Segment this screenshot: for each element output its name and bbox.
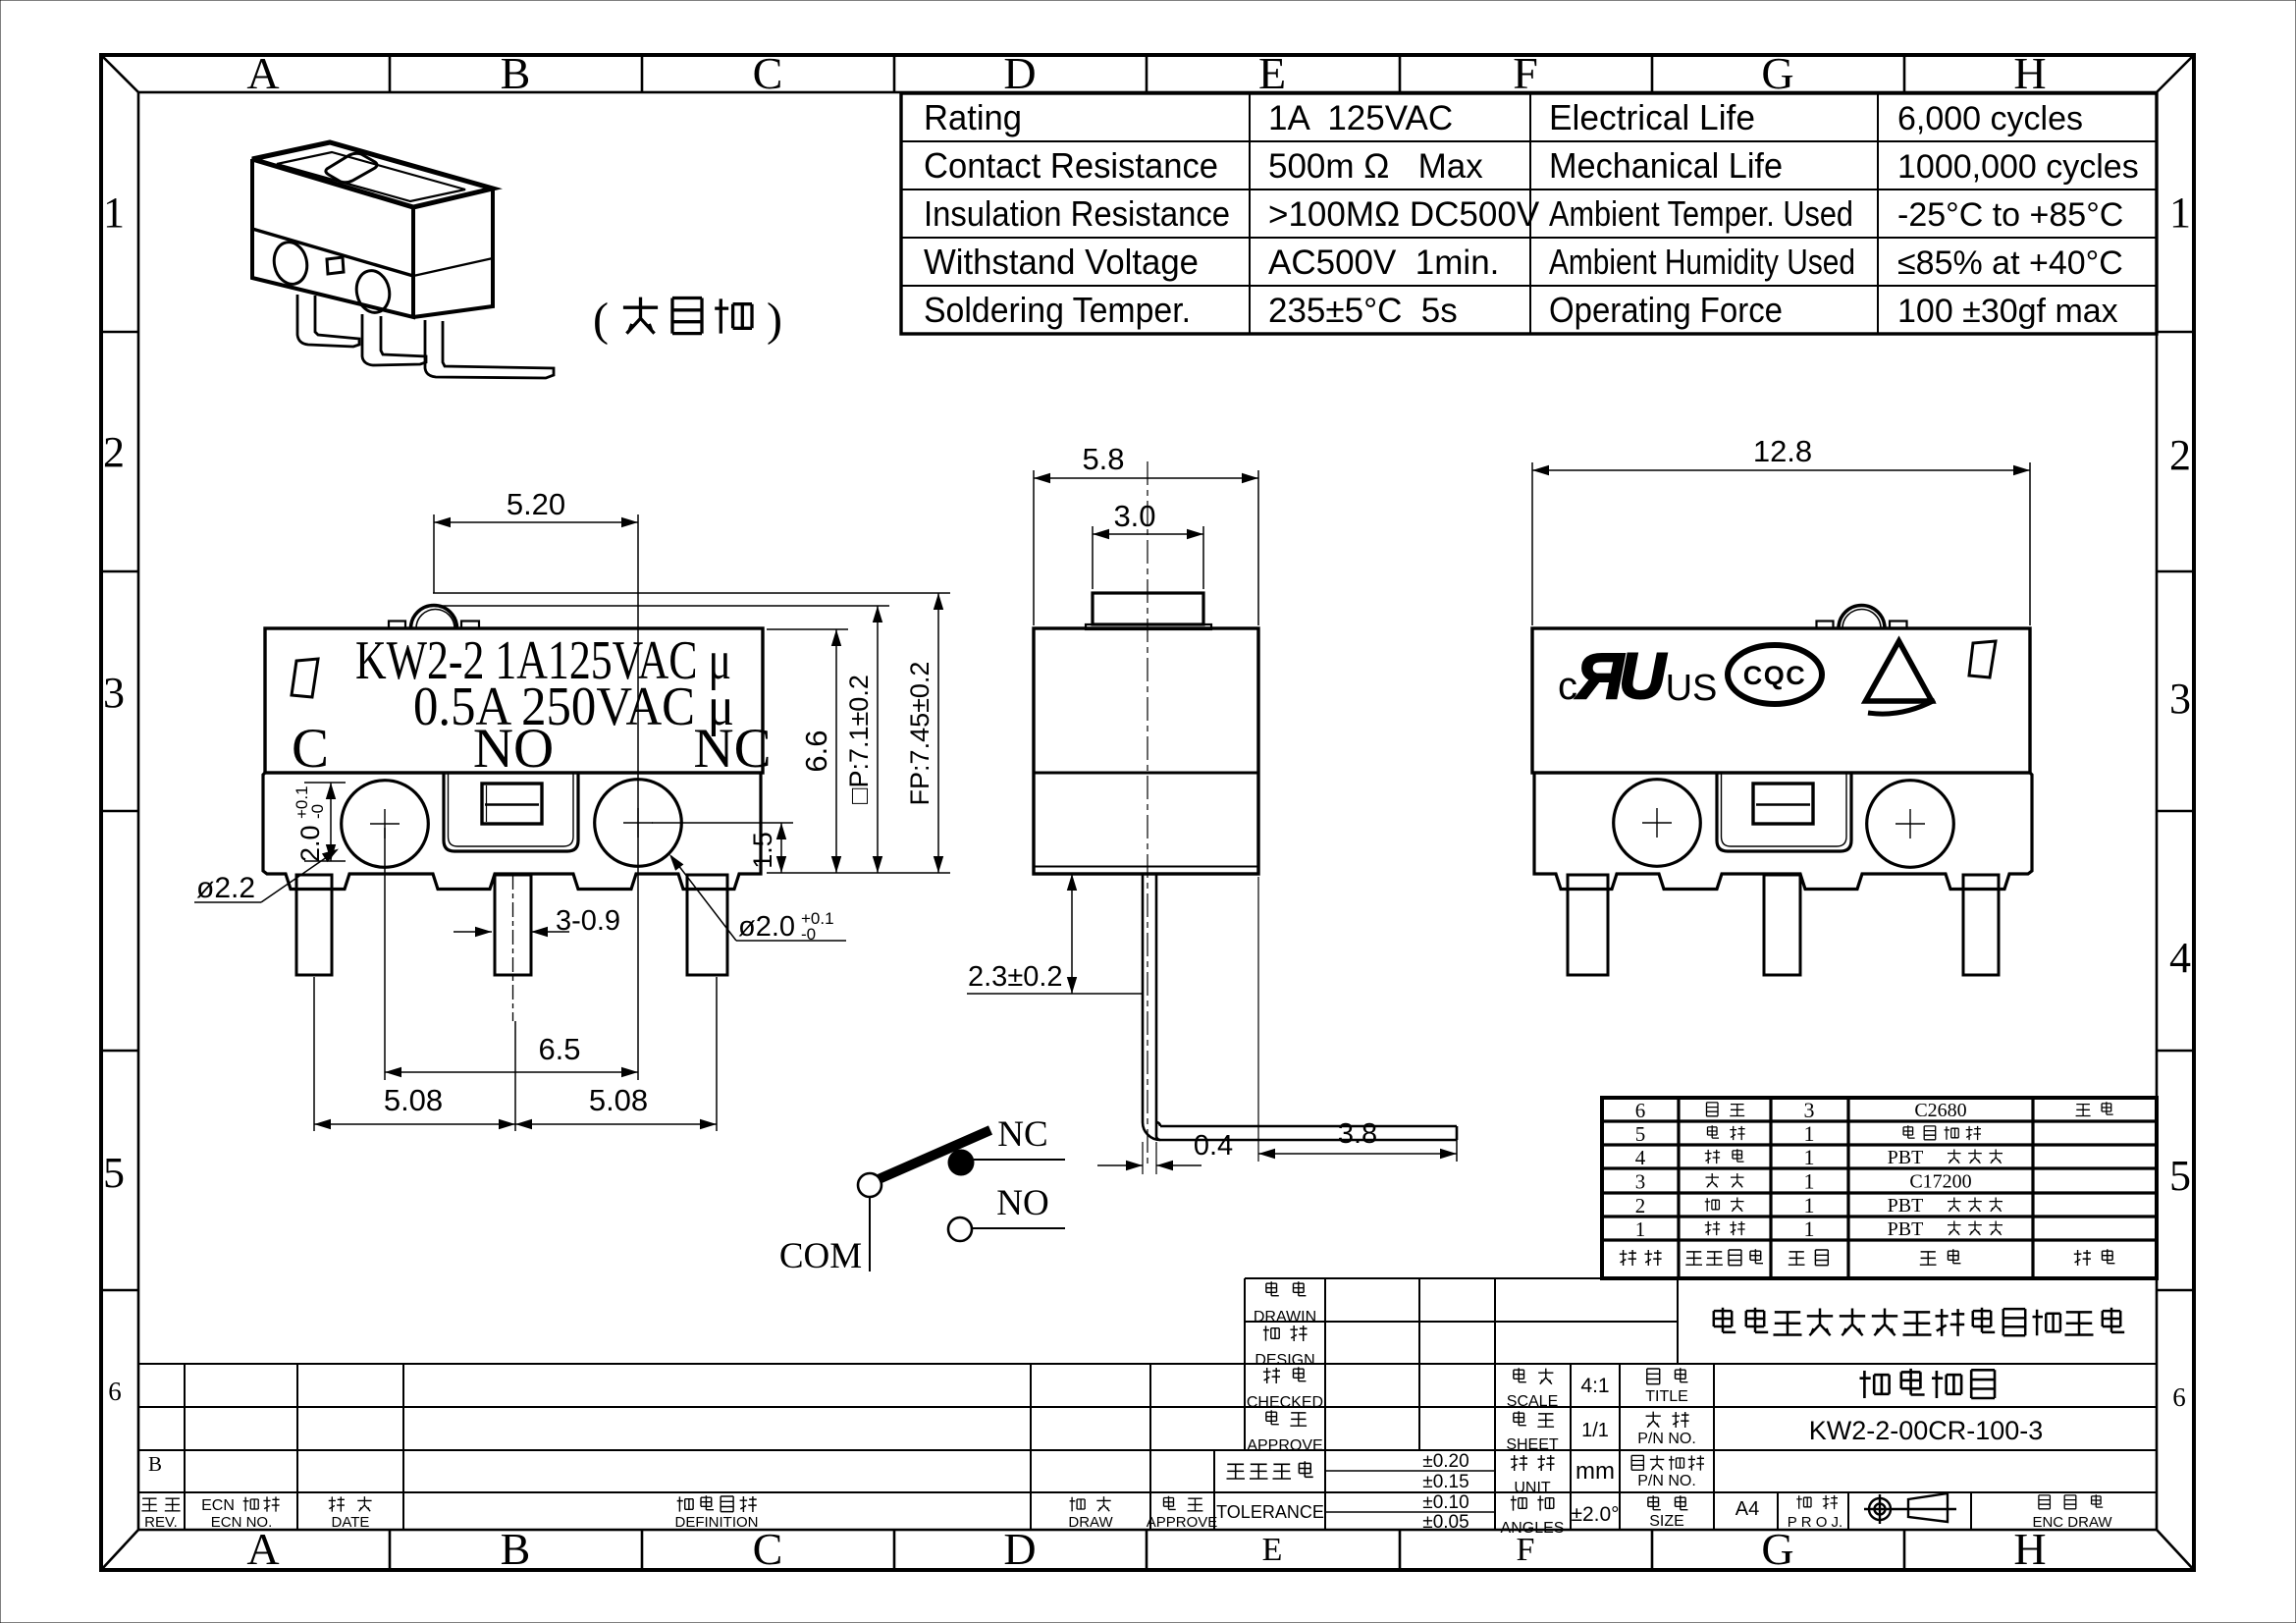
svg-text:D: D — [1003, 48, 1036, 98]
svg-text:Ambient Humidity Used: Ambient Humidity Used — [1549, 242, 1855, 282]
svg-text:C: C — [753, 48, 783, 98]
svg-text:3-0.9: 3-0.9 — [556, 905, 620, 937]
svg-text:1A 125VAC: 1A 125VAC — [1268, 99, 1453, 137]
svg-text:1: 1 — [1804, 1193, 1815, 1217]
svg-text:UNIT: UNIT — [1514, 1480, 1551, 1496]
svg-text:Insulation Resistance: Insulation Resistance — [924, 193, 1230, 234]
svg-text:A4: A4 — [1735, 1498, 1759, 1520]
svg-text:FP:7.45±0.2: FP:7.45±0.2 — [905, 662, 934, 806]
svg-text:5.8: 5.8 — [1082, 442, 1124, 476]
svg-text:KW2-2-00CR-100-3: KW2-2-00CR-100-3 — [1809, 1416, 2044, 1445]
svg-text:B: B — [148, 1452, 162, 1476]
svg-text:6.6: 6.6 — [799, 730, 833, 772]
svg-text:A: A — [246, 48, 279, 98]
svg-text:B: B — [501, 1524, 531, 1574]
svg-text:±0.05: ±0.05 — [1422, 1512, 1468, 1533]
svg-text:1: 1 — [1804, 1169, 1815, 1194]
svg-text:NC: NC — [997, 1114, 1047, 1155]
svg-text:G: G — [1761, 48, 1793, 98]
svg-text:Contact Resistance: Contact Resistance — [924, 145, 1218, 186]
svg-text:-0: -0 — [308, 804, 327, 819]
svg-text:PBT: PBT — [1888, 1195, 1924, 1217]
svg-text:ЯU: ЯU — [1575, 639, 1668, 712]
svg-text:APPROVE: APPROVE — [1247, 1437, 1322, 1454]
svg-text:100 ±30gf max: 100 ±30gf max — [1897, 293, 2118, 330]
svg-text:P/N NO.: P/N NO. — [1637, 1431, 1696, 1447]
svg-text:5: 5 — [2169, 1152, 2191, 1200]
svg-text:5.08: 5.08 — [589, 1083, 648, 1117]
svg-text:≤85% at +40°C: ≤85% at +40°C — [1897, 244, 2123, 282]
svg-text:C2680: C2680 — [1914, 1100, 1966, 1121]
svg-text:US: US — [1666, 668, 1718, 709]
svg-text:6.5: 6.5 — [538, 1032, 580, 1066]
svg-text:Soldering Temper.: Soldering Temper. — [924, 290, 1191, 330]
svg-text:NO: NO — [996, 1183, 1048, 1223]
svg-text:E: E — [1258, 48, 1286, 98]
svg-text:F: F — [1517, 1532, 1535, 1568]
svg-text:C: C — [292, 718, 329, 780]
svg-text:(: ( — [593, 294, 609, 346]
svg-text:5.08: 5.08 — [384, 1083, 443, 1117]
svg-text:H: H — [2013, 48, 2046, 98]
svg-text:3: 3 — [103, 669, 125, 717]
svg-text:ENC DRAW: ENC DRAW — [2032, 1514, 2112, 1531]
svg-text:Mechanical Life: Mechanical Life — [1549, 145, 1783, 186]
svg-text:4:1: 4:1 — [1580, 1375, 1609, 1397]
svg-text:2: 2 — [103, 428, 125, 476]
svg-text:DESIGN: DESIGN — [1255, 1352, 1314, 1369]
svg-text:±0.20: ±0.20 — [1422, 1451, 1468, 1472]
svg-text:1/1: 1/1 — [1581, 1420, 1609, 1441]
svg-text:±2.0°: ±2.0° — [1571, 1503, 1619, 1526]
svg-text:Ambient Temper. Used: Ambient Temper. Used — [1549, 193, 1853, 234]
svg-text:1: 1 — [1804, 1121, 1815, 1146]
svg-text:B: B — [501, 48, 531, 98]
svg-text:3.0: 3.0 — [1113, 499, 1155, 533]
svg-text:3: 3 — [1635, 1170, 1646, 1194]
svg-text:0.4: 0.4 — [1194, 1130, 1233, 1162]
svg-text:DATE: DATE — [332, 1514, 370, 1531]
svg-text:H: H — [2013, 1524, 2046, 1574]
svg-text:SHEET: SHEET — [1506, 1436, 1559, 1453]
svg-text:5: 5 — [1635, 1122, 1646, 1146]
svg-text:CHECKED: CHECKED — [1247, 1394, 1323, 1411]
svg-text:A: A — [246, 1524, 279, 1574]
svg-text:NO: NO — [473, 718, 554, 780]
svg-text:3.8: 3.8 — [1338, 1118, 1377, 1150]
svg-text:-25°C to +85°C: -25°C to +85°C — [1897, 196, 2123, 234]
svg-text:1: 1 — [1635, 1217, 1646, 1241]
svg-text:ECN: ECN — [201, 1497, 235, 1514]
svg-text:P R O J.: P R O J. — [1788, 1514, 1842, 1531]
svg-text:REV.: REV. — [144, 1514, 178, 1531]
svg-text:ECN NO.: ECN NO. — [211, 1514, 273, 1531]
svg-text:ø2.2: ø2.2 — [196, 872, 255, 904]
svg-text:E: E — [1262, 1532, 1283, 1568]
svg-text:TITLE: TITLE — [1645, 1388, 1688, 1405]
svg-text:1: 1 — [103, 189, 125, 237]
svg-text:F: F — [1513, 48, 1538, 98]
svg-text:5.20: 5.20 — [507, 487, 565, 521]
svg-text:4: 4 — [2169, 934, 2191, 982]
svg-text:DRAWIN: DRAWIN — [1254, 1309, 1316, 1325]
svg-text:DEFINITION: DEFINITION — [675, 1514, 759, 1531]
svg-text:mm: mm — [1575, 1458, 1615, 1485]
svg-text:C: C — [753, 1524, 783, 1574]
svg-text:1.5: 1.5 — [748, 832, 777, 869]
svg-text:3: 3 — [2169, 675, 2191, 723]
svg-text:2: 2 — [2169, 431, 2191, 479]
svg-text:3: 3 — [1804, 1098, 1815, 1122]
svg-text:Operating Force: Operating Force — [1549, 290, 1783, 330]
svg-text:6,000 cycles: 6,000 cycles — [1897, 100, 2083, 137]
svg-text:PBT: PBT — [1888, 1218, 1924, 1240]
svg-text:2.3±0.2: 2.3±0.2 — [968, 961, 1063, 993]
svg-text:NC: NC — [693, 718, 771, 780]
svg-text:SCALE: SCALE — [1507, 1393, 1558, 1410]
svg-text:1: 1 — [1804, 1145, 1815, 1169]
svg-text:APPROVE: APPROVE — [1147, 1514, 1218, 1531]
svg-text:P/N NO.: P/N NO. — [1637, 1473, 1696, 1489]
svg-text:6: 6 — [2172, 1382, 2186, 1412]
svg-text:235±5°C 5s: 235±5°C 5s — [1268, 292, 1458, 330]
svg-text:5: 5 — [103, 1149, 125, 1197]
svg-text:ANGLES: ANGLES — [1501, 1520, 1565, 1537]
svg-text:±0.15: ±0.15 — [1422, 1472, 1468, 1492]
svg-text:SIZE: SIZE — [1649, 1513, 1684, 1530]
svg-text:AC500V 1min.: AC500V 1min. — [1268, 243, 1499, 282]
svg-text:COM: COM — [779, 1236, 862, 1276]
svg-text:DRAW: DRAW — [1068, 1514, 1113, 1531]
svg-text:□P:7.1±0.2: □P:7.1±0.2 — [844, 675, 874, 804]
svg-text:D: D — [1003, 1524, 1036, 1574]
svg-text:6: 6 — [1635, 1099, 1646, 1122]
svg-text:CQC: CQC — [1743, 661, 1807, 690]
svg-text:PBT: PBT — [1888, 1147, 1924, 1168]
svg-text:>100MΩ DC500V: >100MΩ DC500V — [1268, 195, 1540, 234]
svg-text:Electrical Life: Electrical Life — [1549, 97, 1755, 137]
svg-text:C17200: C17200 — [1909, 1171, 1971, 1193]
svg-text:0.5A 250VAC μ: 0.5A 250VAC μ — [413, 676, 734, 737]
svg-text:±0.10: ±0.10 — [1422, 1492, 1468, 1513]
svg-text:2: 2 — [1635, 1194, 1646, 1217]
svg-text:500m Ω Max: 500m Ω Max — [1268, 147, 1483, 186]
svg-text:12.8: 12.8 — [1753, 434, 1812, 468]
svg-text:Rating: Rating — [924, 97, 1022, 137]
svg-text:1000,000 cycles: 1000,000 cycles — [1897, 148, 2139, 186]
svg-text:G: G — [1761, 1524, 1793, 1574]
svg-text:c: c — [1558, 665, 1577, 708]
svg-text:TOLERANCE: TOLERANCE — [1216, 1502, 1324, 1522]
svg-text:Withstand Voltage: Withstand Voltage — [924, 242, 1199, 282]
svg-text:2.0: 2.0 — [295, 825, 325, 862]
svg-text:6: 6 — [108, 1377, 122, 1406]
svg-text:1: 1 — [1804, 1217, 1815, 1241]
svg-text:): ) — [767, 294, 782, 346]
svg-text:4: 4 — [1635, 1146, 1646, 1169]
svg-text:ø2.0: ø2.0 — [738, 911, 795, 943]
svg-text:1: 1 — [2169, 189, 2191, 237]
